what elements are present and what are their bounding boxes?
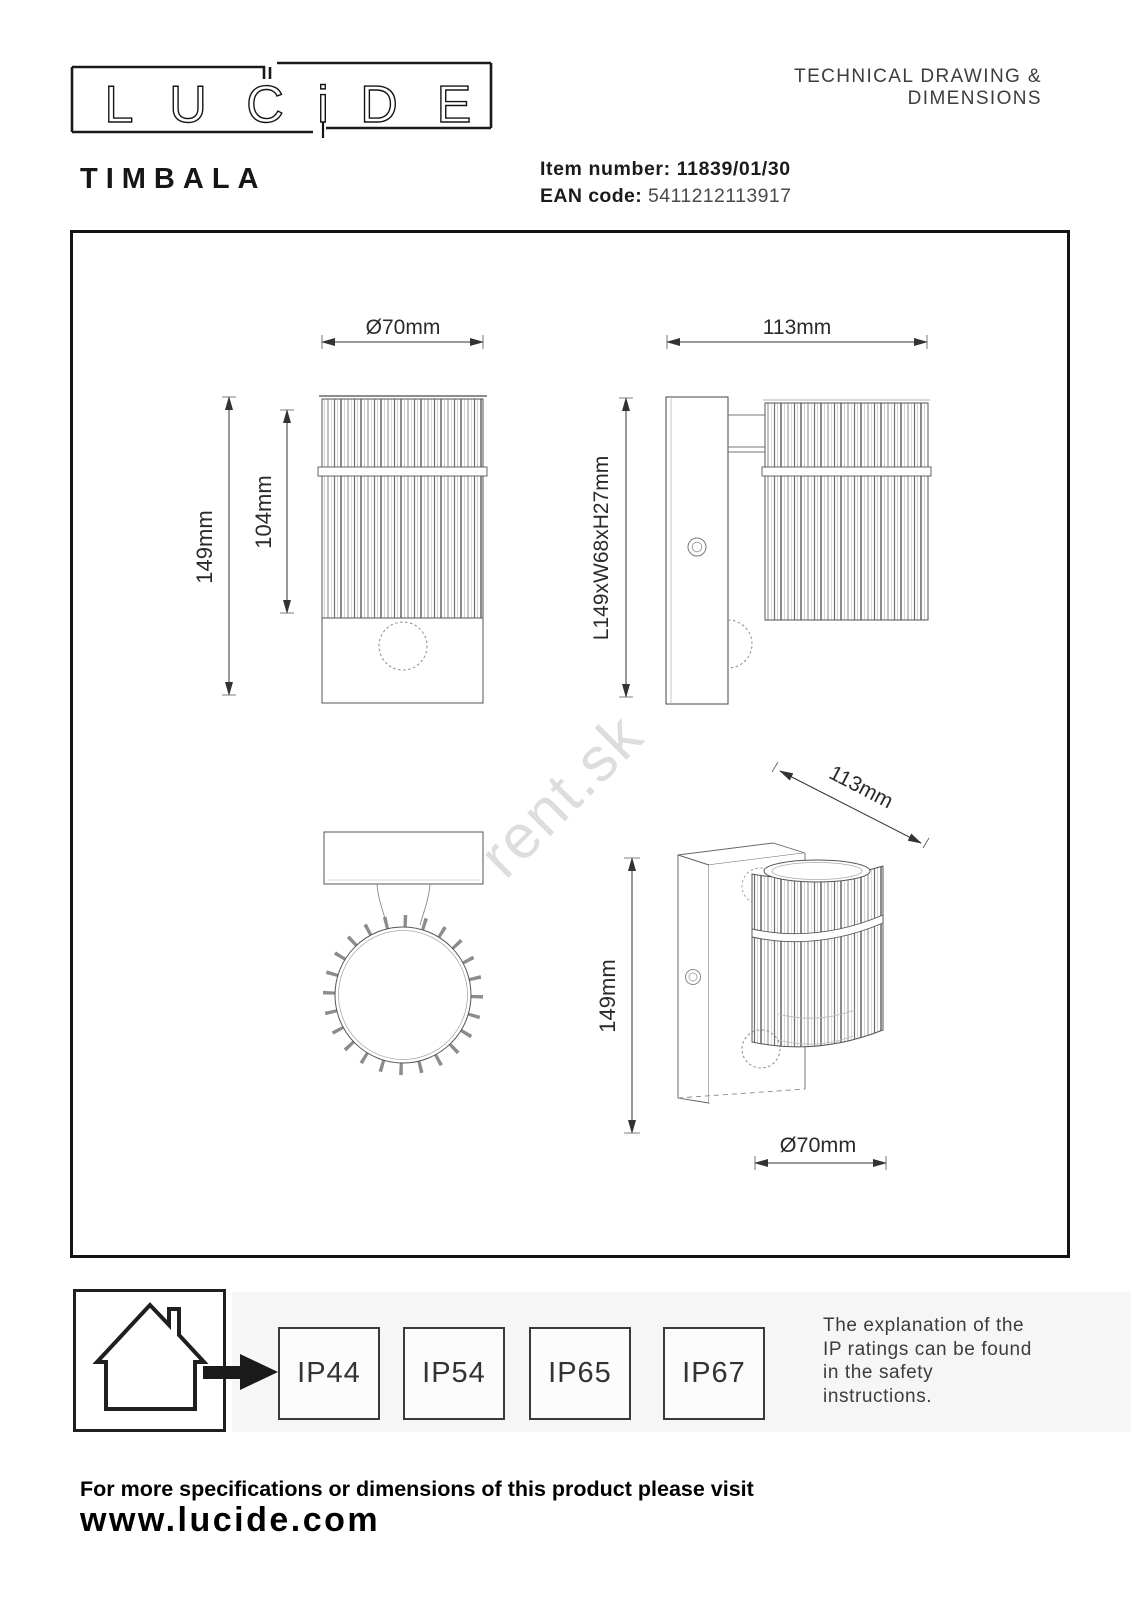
technical-drawing: Ø70mm 149mm 104mm 113mm — [73, 233, 1067, 1255]
side-width-label: 113mm — [763, 316, 831, 339]
logo-letter: L — [105, 76, 134, 134]
lucide-logo: L U C i D E — [70, 58, 494, 154]
product-name: TIMBALA — [80, 163, 266, 196]
perspective-height-label: 149mm — [595, 959, 620, 1032]
front-height-dimension: 149mm — [192, 397, 236, 695]
ip-note-line: instructions. — [823, 1385, 1032, 1409]
ean-code-line: EAN code: 5411212113917 — [540, 185, 791, 208]
front-view-drawing: Ø70mm 149mm 104mm — [192, 316, 487, 703]
item-number-line: Item number: 11839/01/30 — [540, 158, 791, 181]
side-width-dimension: 113mm — [667, 316, 927, 349]
watermark-text: rent.sk — [467, 701, 657, 891]
ean-code-value: 5411212113917 — [648, 185, 791, 207]
ip-rating-ip54: IP54 — [403, 1327, 505, 1420]
perspective-diameter-dimension: Ø70mm — [755, 1133, 886, 1170]
ip-note-line: IP ratings can be found — [823, 1338, 1032, 1362]
side-size-dimension: L149xW68xH27mm — [590, 398, 633, 697]
logo-letter: E — [437, 76, 472, 134]
side-size-label: L149xW68xH27mm — [590, 456, 613, 640]
ip-ratings-note: The explanation of the IP ratings can be… — [823, 1314, 1032, 1408]
spec-sheet-page: { "colors": { "ink":"#1a1a1a", "frame":"… — [0, 0, 1131, 1600]
logo-letter: D — [360, 76, 398, 134]
logo-letter: C — [246, 76, 284, 134]
side-view-drawing: 113mm L149xW68xH27mm — [590, 316, 931, 704]
ip-note-line: The explanation of the — [823, 1314, 1032, 1338]
ip-rating-ip65: IP65 — [529, 1327, 631, 1420]
perspective-width-label: 113mm — [825, 761, 896, 813]
doc-type-title: TECHNICAL DRAWING & DIMENSIONS — [660, 66, 1042, 110]
front-height-label: 149mm — [192, 510, 217, 583]
technical-drawing-frame: Ø70mm 149mm 104mm 113mm — [70, 230, 1070, 1258]
front-body-height-dimension: 104mm — [251, 410, 294, 613]
ip-rating-ip44: IP44 — [278, 1327, 380, 1420]
ean-code-label: EAN code: — [540, 185, 642, 207]
front-diameter-label: Ø70mm — [366, 316, 441, 339]
logo-letter: U — [169, 76, 207, 134]
front-diameter-dimension: Ø70mm — [322, 316, 483, 349]
footer-website: www.lucide.com — [80, 1501, 380, 1540]
perspective-width-dimension: 113mm — [772, 761, 929, 848]
ip-note-line: in the safety — [823, 1361, 1032, 1385]
top-view-drawing — [324, 832, 483, 1069]
item-number-label: Item number: — [540, 158, 671, 180]
footer-text: For more specifications or dimensions of… — [80, 1477, 754, 1502]
ip-rating-ip67: IP67 — [663, 1327, 765, 1420]
front-body-height-label: 104mm — [251, 475, 276, 548]
arrow-right-icon — [200, 1350, 282, 1394]
item-number-value: 11839/01/30 — [677, 158, 791, 180]
perspective-height-dimension: 149mm — [595, 858, 640, 1133]
perspective-view-drawing: 113mm 149mm Ø70mm — [595, 761, 929, 1170]
perspective-diameter-label: Ø70mm — [780, 1133, 856, 1157]
